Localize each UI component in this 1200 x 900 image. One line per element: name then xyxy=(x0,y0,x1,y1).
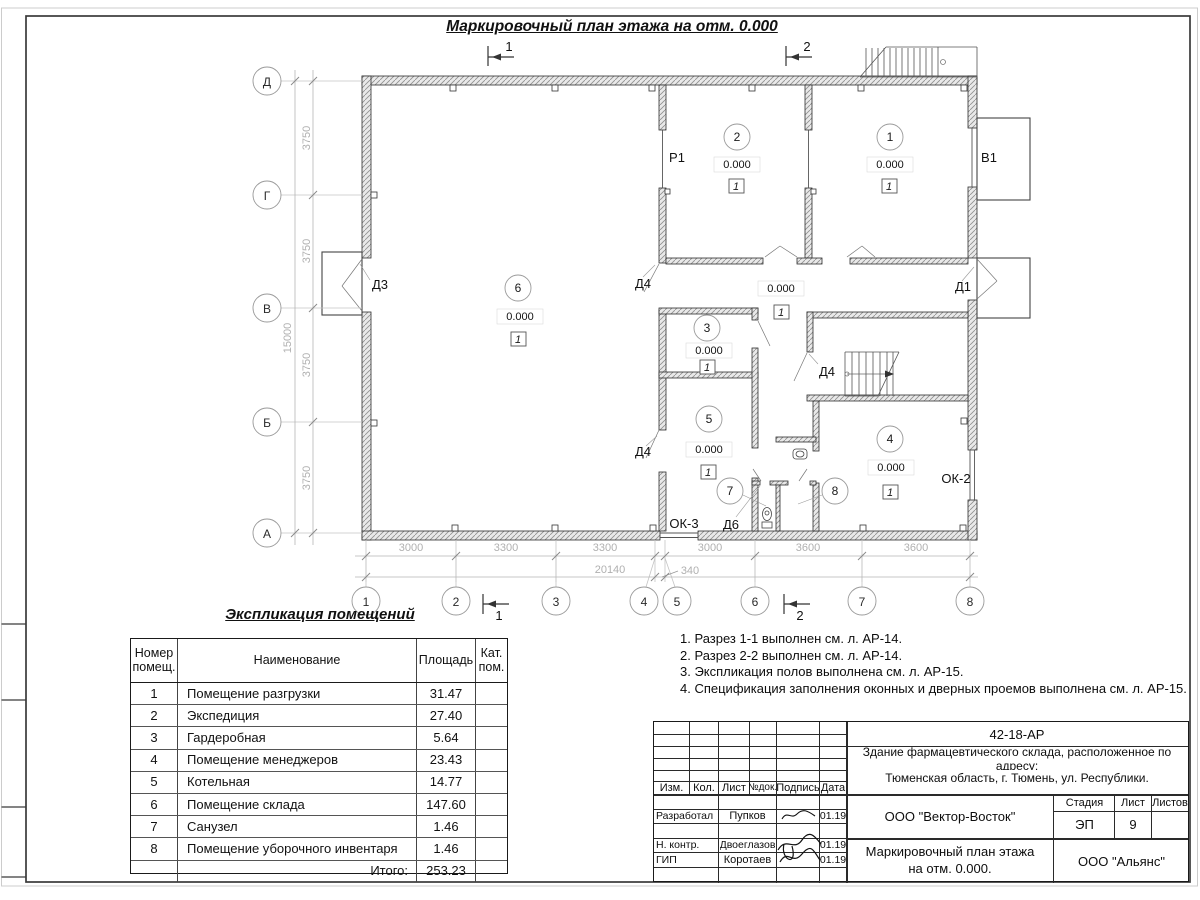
cell-num: 4 xyxy=(131,750,178,771)
signature-pupkov xyxy=(778,808,818,823)
room-8-number: 8 xyxy=(832,484,839,498)
cell-cat xyxy=(476,727,507,748)
room-3-number: 3 xyxy=(704,321,711,335)
axis-B: Б xyxy=(263,416,271,430)
cell-num: 6 xyxy=(131,794,178,815)
door-label-d6: Д6 xyxy=(723,517,739,532)
cell-num: 1 xyxy=(131,683,178,704)
table-row: 2 Экспедиция 27.40 xyxy=(131,705,507,727)
cell-num: 8 xyxy=(131,838,178,859)
dim-3750-b: 3750 xyxy=(301,239,313,263)
table-row: 1 Помещение разгрузки 31.47 xyxy=(131,683,507,705)
room-5-floor-type: 1 xyxy=(705,467,711,479)
cell-area: 5.64 xyxy=(417,727,476,748)
dim-15000: 15000 xyxy=(282,323,294,354)
header-name: Наименование xyxy=(178,639,417,682)
stamp-header-podpis: Подпись xyxy=(777,781,819,794)
cell-area: 1.46 xyxy=(417,838,476,859)
dim-3000-a: 3000 xyxy=(399,542,423,554)
door-label-d4-corridor: Д4 xyxy=(635,276,651,291)
header-category: Кат. пом. xyxy=(476,639,507,682)
stamp-role-gip: ГИП xyxy=(656,852,718,867)
dim-3750-a: 3750 xyxy=(301,126,313,150)
table-row: 5 Котельная 14.77 xyxy=(131,772,507,794)
sink-icon xyxy=(793,449,807,459)
dim-3600-a: 3600 xyxy=(796,542,820,554)
stamp-header-izm: Изм. xyxy=(654,781,689,794)
bottom-dimensions: 3000 3300 3300 3000 3600 3600 20140 340 xyxy=(399,542,928,577)
opening-label-p1: Р1 xyxy=(669,150,685,165)
room-5-elevation: 0.000 xyxy=(695,444,723,456)
dimension-ticks xyxy=(291,77,974,581)
room-1-elevation: 0.000 xyxy=(876,159,904,171)
corridor-floor-type: 1 xyxy=(778,307,784,319)
cell-num: 3 xyxy=(131,727,178,748)
title-block: Изм. Кол. Лист №док. Подпись Дата Разраб… xyxy=(653,721,1189,882)
corridor-elevation: 0.000 xyxy=(767,283,795,295)
door-label-d4-room5: Д4 xyxy=(635,444,651,459)
cell-name: Санузел xyxy=(178,816,417,837)
note-line: 3. Экспликация полов выполнена см. л. АР… xyxy=(680,664,1187,681)
drawing-sheet: { "sheet": { "title": "Маркировочный пла… xyxy=(0,0,1200,900)
room-2-floor-type: 1 xyxy=(733,181,739,193)
axis-A: А xyxy=(263,527,271,541)
axis-6: 6 xyxy=(752,595,759,609)
stamp-sheets-value xyxy=(1152,812,1188,837)
cell-cat xyxy=(476,838,507,859)
room-5-number: 5 xyxy=(706,412,713,426)
note-line: 2. Разрез 2-2 выполнен см. л. АР-14. xyxy=(680,648,1187,665)
stamp-sheet-value: 9 xyxy=(1115,812,1151,837)
section-mark-1-top: 1 xyxy=(505,39,512,54)
notes-block: 1. Разрез 1-1 выполнен см. л. АР-14. 2. … xyxy=(680,631,1187,697)
room-3-floor-type: 1 xyxy=(704,362,710,374)
table-row: 7 Санузел 1.46 xyxy=(131,816,507,838)
stamp-header-data: Дата xyxy=(820,781,846,794)
cell-area: 1.46 xyxy=(417,816,476,837)
stamp-stage-label: Стадия xyxy=(1055,795,1114,811)
stamp-drawing-title-2: на отм. 0.000. xyxy=(848,858,1052,878)
cell-name: Помещение склада xyxy=(178,794,417,815)
cell-area: 31.47 xyxy=(417,683,476,704)
cell-name: Котельная xyxy=(178,772,417,793)
interior-walls xyxy=(659,85,968,531)
toilet-icon xyxy=(762,508,772,529)
stamp-doc-number: 42-18-АР xyxy=(846,722,1188,746)
room-6-elevation: 0.000 xyxy=(506,311,534,323)
note-line: 4. Спецификация заполнения оконных и две… xyxy=(680,681,1187,698)
header-room-number: Номер помещ. xyxy=(131,639,178,682)
table-total-row: Итого: 253.23 xyxy=(131,861,507,882)
room-2-elevation: 0.000 xyxy=(723,159,751,171)
porches xyxy=(322,118,1030,318)
room-6-number: 6 xyxy=(515,281,522,295)
sheet-title: Маркировочный план этажа на отм. 0.000 xyxy=(362,18,862,36)
table-row: 4 Помещение менеджеров 23.43 xyxy=(131,750,507,772)
explication-table: Номер помещ. Наименование Площадь Кат. п… xyxy=(130,638,508,874)
dim-340: 340 xyxy=(681,565,699,577)
axis-G: Г xyxy=(264,189,271,203)
opening-label-v1: В1 xyxy=(981,150,997,165)
axis-4: 4 xyxy=(641,595,648,609)
signature-overlap xyxy=(772,832,824,872)
dim-3750-d: 3750 xyxy=(301,466,313,490)
stamp-stage-value: ЭП xyxy=(1055,812,1114,837)
door-label-d4-stair: Д4 xyxy=(819,364,835,379)
stamp-org: ООО "Вектор-Восток" xyxy=(848,795,1052,837)
stamp-name-korotaev: Коротаев xyxy=(720,852,775,867)
dimension-lines xyxy=(295,70,978,577)
header-area: Площадь xyxy=(417,639,476,682)
axis-5: 5 xyxy=(674,595,681,609)
section-mark-1-bottom: 1 xyxy=(495,608,502,623)
room-4-elevation: 0.000 xyxy=(877,462,905,474)
cell-num: 5 xyxy=(131,772,178,793)
cell-cat xyxy=(476,772,507,793)
total-label: Итого: xyxy=(178,861,417,882)
room-1-floor-type: 1 xyxy=(886,181,892,193)
room-2-number: 2 xyxy=(734,130,741,144)
stamp-header-list: Лист xyxy=(719,781,749,794)
stamp-role-razrabotal: Разработал xyxy=(656,809,718,823)
dim-3750-c: 3750 xyxy=(301,353,313,377)
dim-3000-b: 3000 xyxy=(698,542,722,554)
stamp-company: ООО "Альянс" xyxy=(1055,839,1188,883)
dim-total: 20140 xyxy=(595,564,626,576)
stamp-role-nkontr: Н. контр. xyxy=(656,838,718,852)
cell-name: Экспедиция xyxy=(178,705,417,726)
cell-area: 14.77 xyxy=(417,772,476,793)
cell-empty xyxy=(131,861,178,882)
cell-cat xyxy=(476,705,507,726)
exterior-stair xyxy=(860,47,977,77)
cell-num: 2 xyxy=(131,705,178,726)
room-4-floor-type: 1 xyxy=(887,487,893,499)
note-line: 1. Разрез 1-1 выполнен см. л. АР-14. xyxy=(680,631,1187,648)
section-mark-2-top: 2 xyxy=(803,39,810,54)
room-1-number: 1 xyxy=(887,130,894,144)
cell-area: 23.43 xyxy=(417,750,476,771)
table-row: 8 Помещение уборочного инвентаря 1.46 xyxy=(131,838,507,860)
stamp-sheet-label: Лист xyxy=(1115,795,1151,811)
cell-cat xyxy=(476,816,507,837)
room-6-floor-type: 1 xyxy=(515,334,521,346)
axis-7: 7 xyxy=(859,595,866,609)
door-label-d3: Д3 xyxy=(372,277,388,292)
cell-name: Гардеробная xyxy=(178,727,417,748)
table-header-row: Номер помещ. Наименование Площадь Кат. п… xyxy=(131,639,507,683)
dim-3600-b: 3600 xyxy=(904,542,928,554)
cell-num: 7 xyxy=(131,816,178,837)
cell-name: Помещение разгрузки xyxy=(178,683,417,704)
door-label-d1: Д1 xyxy=(955,279,971,294)
table-row: 6 Помещение склада 147.60 xyxy=(131,794,507,816)
axis-D: Д xyxy=(263,75,271,89)
dim-3300-b: 3300 xyxy=(593,542,617,554)
section-mark-2-bottom: 2 xyxy=(796,608,803,623)
interior-stair xyxy=(845,352,899,396)
stamp-sheets-label: Листов xyxy=(1152,795,1188,811)
axis-3: 3 xyxy=(553,595,560,609)
stamp-name-dvoeglazov: Двоеглазов xyxy=(720,838,775,852)
cell-area: 27.40 xyxy=(417,705,476,726)
extension-lines xyxy=(281,81,970,587)
window-label-ok2: ОК-2 xyxy=(941,471,970,486)
explication-title: Экспликация помещений xyxy=(180,606,460,623)
table-row: 3 Гардеробная 5.64 xyxy=(131,727,507,749)
label-leaders xyxy=(360,264,974,517)
cell-name: Помещение менеджеров xyxy=(178,750,417,771)
cell-cat xyxy=(476,683,507,704)
total-value: 253.23 xyxy=(417,861,476,882)
dim-3300-a: 3300 xyxy=(494,542,518,554)
window-label-ok3: ОК-3 xyxy=(669,516,698,531)
room-7-number: 7 xyxy=(727,484,734,498)
cell-area: 147.60 xyxy=(417,794,476,815)
room-3-elevation: 0.000 xyxy=(695,345,723,357)
axis-8: 8 xyxy=(967,595,974,609)
room-4-number: 4 xyxy=(887,432,894,446)
stamp-header-kol: Кол. xyxy=(690,781,718,794)
cell-name: Помещение уборочного инвентаря xyxy=(178,838,417,859)
cell-cat xyxy=(476,750,507,771)
cell-cat xyxy=(476,794,507,815)
cell-cat xyxy=(476,861,507,882)
stamp-name-pupkov: Пупков xyxy=(720,809,775,823)
stamp-date-1: 01.19 xyxy=(820,809,846,823)
stamp-header-doc: №док. xyxy=(749,781,776,794)
axis-V: В xyxy=(263,302,271,316)
stamp-project-line2: Тюменская область, г. Тюмень, ул. Респуб… xyxy=(850,766,1184,789)
